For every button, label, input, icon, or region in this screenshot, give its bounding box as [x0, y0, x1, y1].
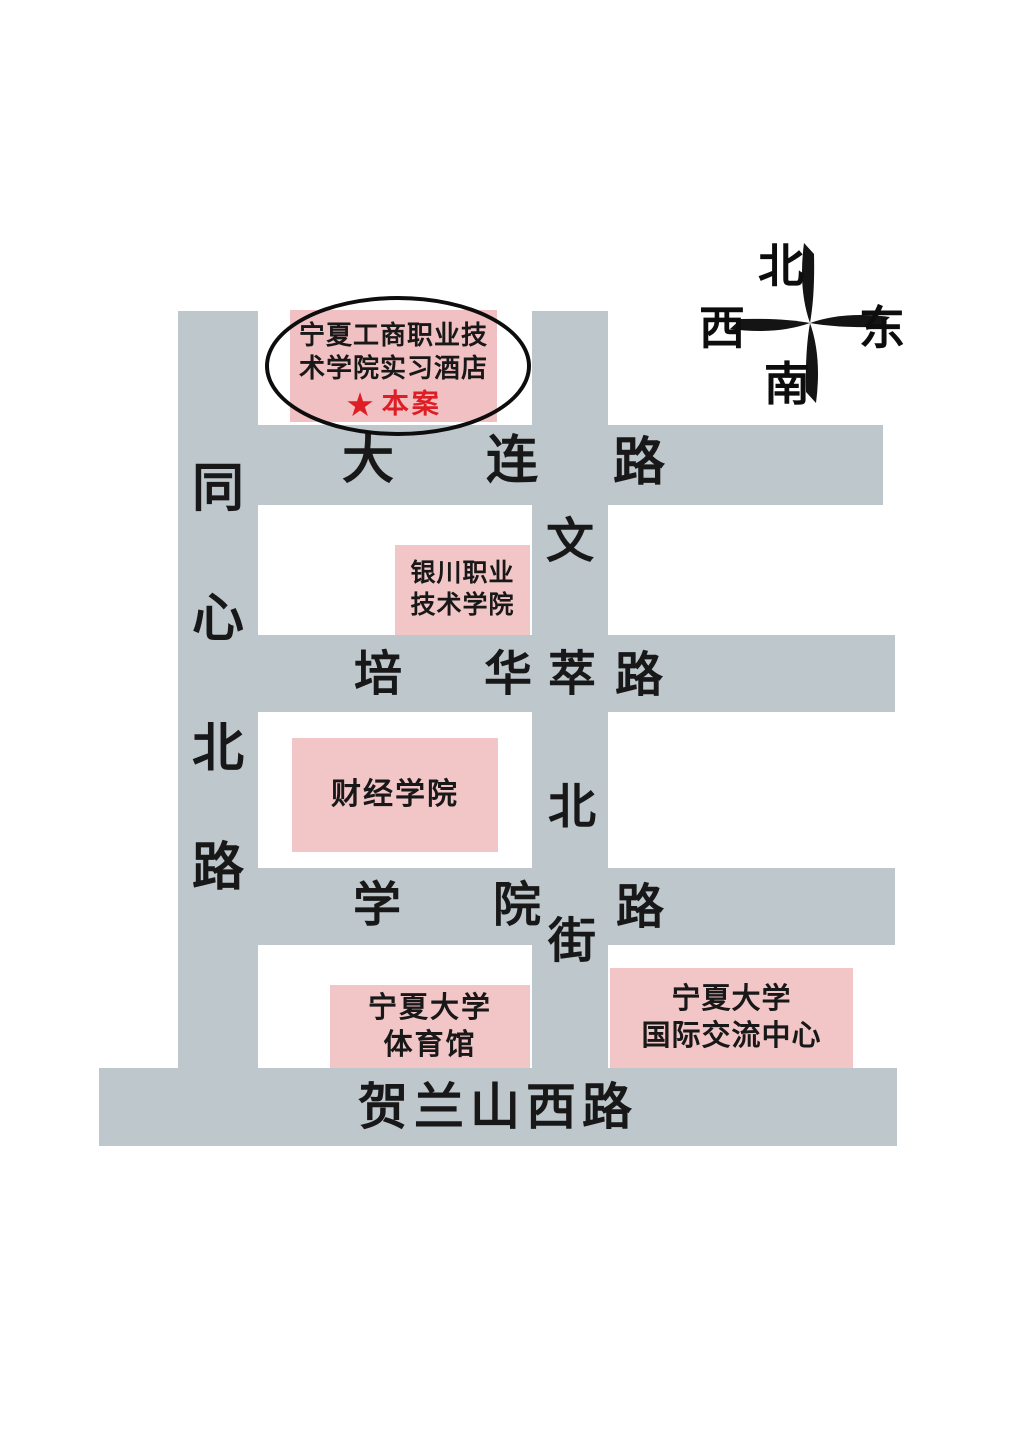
- road-label-dalian-char3: 路: [613, 438, 665, 490]
- road-label-tongxin-char2: 心: [192, 594, 244, 646]
- road-label-peihua-char3: 路: [615, 652, 663, 700]
- compass-north-label: 北: [758, 244, 804, 290]
- building-nxu-gym: 宁夏大学 体育馆: [330, 985, 530, 1068]
- road-label-peihua-char2: 华: [484, 651, 532, 699]
- finance-college-label: 财经学院: [331, 778, 459, 812]
- road-label-dalian-char2: 连: [486, 436, 538, 488]
- nxu-gym-line1: 宁夏大学: [368, 990, 492, 1027]
- compass-east-label: 东: [859, 306, 905, 352]
- nxu-intl-center-line1: 宁夏大学: [671, 981, 791, 1018]
- compass-west-label: 西: [699, 306, 745, 352]
- road-label-tongxin-char4: 路: [192, 843, 244, 895]
- road-label-xueyuan-char2: 院: [493, 882, 541, 930]
- road-label-wencui-char1: 文: [546, 518, 594, 566]
- road-label-wencui-char2: 萃: [548, 651, 596, 699]
- road-label-tongxin-char3: 北: [192, 724, 244, 776]
- road-label-wencui-char3: 北: [548, 784, 596, 832]
- compass-south-label: 南: [764, 362, 810, 408]
- building-nxu-intl-center: 宁夏大学 国际交流中心: [610, 968, 853, 1068]
- road-label-xueyuan-char1: 学: [353, 882, 401, 930]
- yinchuan-vocational-line1: 银川职业: [410, 558, 514, 590]
- highlight-ellipse: [265, 296, 531, 436]
- road-label-tongxin-char1: 同: [192, 464, 244, 516]
- building-yinchuan-vocational: 银川职业 技术学院: [395, 545, 530, 635]
- building-finance-college: 财经学院: [292, 738, 498, 852]
- location-map: 大 连 路 培 华 路 学 院 路 同 心 北 路 文 萃 北 街 贺兰山西路 …: [0, 0, 1024, 1448]
- road-label-wencui-char4: 街: [548, 918, 596, 966]
- nxu-gym-line2: 体育馆: [383, 1027, 476, 1064]
- road-label-helanshan-west: 贺兰山西路: [99, 1082, 897, 1132]
- nxu-intl-center-line2: 国际交流中心: [641, 1018, 821, 1055]
- yinchuan-vocational-line2: 技术学院: [410, 590, 514, 622]
- road-label-xueyuan-char3: 路: [616, 884, 664, 932]
- road-label-peihua-char1: 培: [354, 651, 402, 699]
- road-label-dalian-char1: 大: [342, 436, 394, 488]
- road-peihua: [178, 635, 895, 712]
